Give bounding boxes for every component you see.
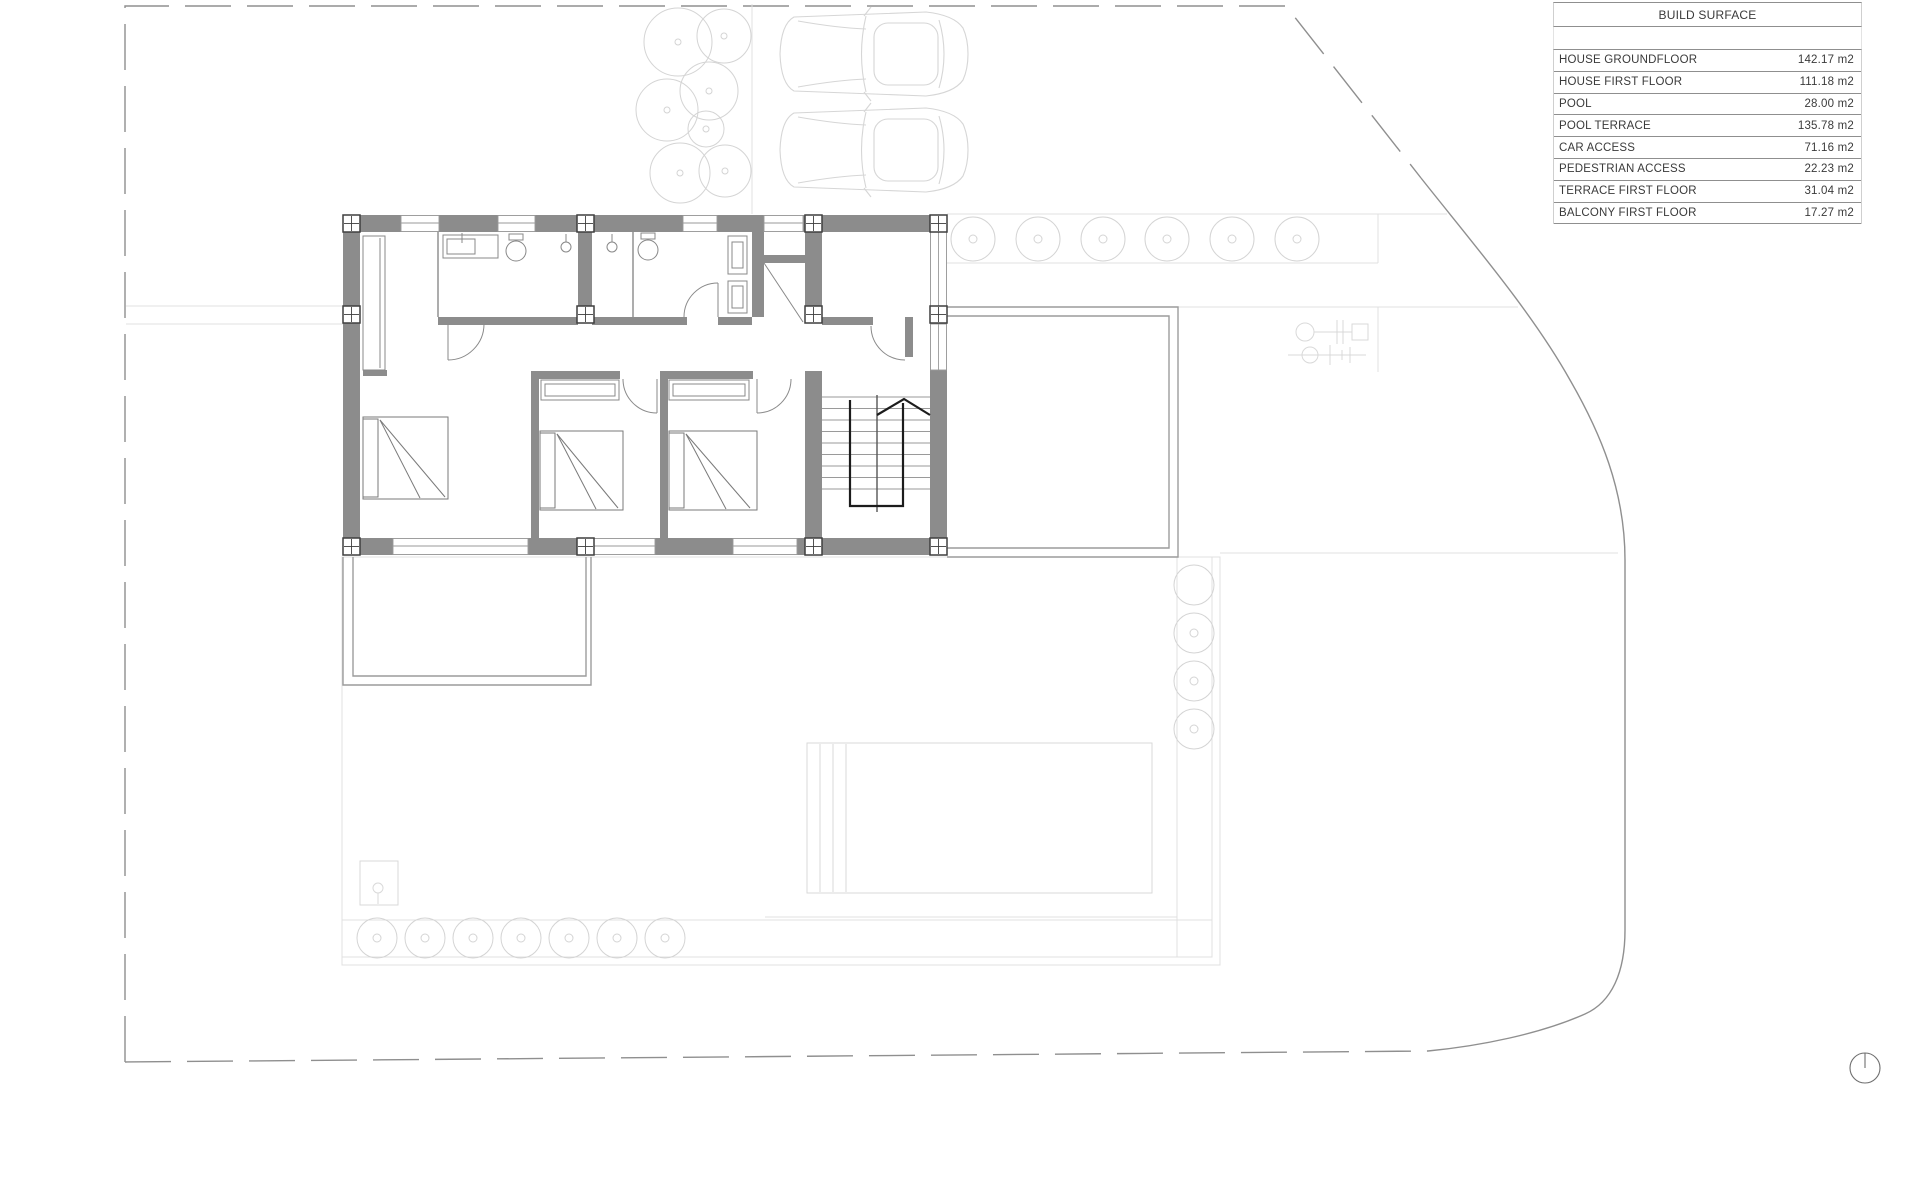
window bbox=[594, 539, 655, 555]
table-row: TERRACE FIRST FLOOR 31.04 m2 bbox=[1554, 181, 1861, 203]
table-row: HOUSE GROUNDFLOOR 142.17 m2 bbox=[1554, 50, 1861, 72]
tree-icon bbox=[501, 918, 541, 958]
table-row: HOUSE FIRST FLOOR 111.18 m2 bbox=[1554, 72, 1861, 94]
boundary-dashed-bottom bbox=[125, 1051, 1428, 1062]
row-value: 135.78 m2 bbox=[1798, 120, 1854, 132]
row-label: CAR ACCESS bbox=[1559, 142, 1635, 154]
car-icon bbox=[780, 7, 968, 101]
tree-icon bbox=[1174, 565, 1214, 605]
floor-plan-sheet: BUILD SURFACE HOUSE GROUNDFLOOR 142.17 m… bbox=[0, 0, 1920, 1200]
table-title: BUILD SURFACE bbox=[1553, 2, 1862, 27]
window bbox=[393, 539, 528, 555]
floor-drain-icon bbox=[561, 234, 571, 252]
window bbox=[683, 216, 717, 232]
house-floor-plan bbox=[343, 215, 947, 555]
row-value: 71.16 m2 bbox=[1804, 142, 1854, 154]
structural-columns bbox=[343, 215, 947, 555]
tree-icon bbox=[1210, 217, 1254, 261]
door-swing bbox=[448, 324, 484, 360]
table-row: POOL TERRACE 135.78 m2 bbox=[1554, 115, 1861, 137]
tree-icon bbox=[1174, 613, 1214, 653]
table-row: BALCONY FIRST FLOOR 17.27 m2 bbox=[1554, 203, 1861, 225]
window bbox=[401, 216, 439, 232]
tree-icon bbox=[453, 918, 493, 958]
tree-icon bbox=[650, 143, 710, 203]
balcony-first-floor bbox=[343, 557, 591, 685]
bed bbox=[540, 431, 623, 510]
terrace-door-opening bbox=[931, 324, 947, 370]
row-label: PEDESTRIAN ACCESS bbox=[1559, 163, 1686, 175]
door-swing bbox=[871, 326, 905, 360]
table-row: PEDESTRIAN ACCESS 22.23 m2 bbox=[1554, 159, 1861, 181]
tree-icon bbox=[645, 918, 685, 958]
tree-icon bbox=[1174, 661, 1214, 701]
bedroom-wardrobes bbox=[541, 380, 749, 400]
terrace-first-floor bbox=[947, 307, 1178, 557]
row-label: POOL TERRACE bbox=[1559, 120, 1651, 132]
toilet-icon bbox=[506, 234, 526, 261]
boundary-curve-right bbox=[1421, 178, 1625, 1051]
beds bbox=[363, 417, 757, 510]
table-rows: HOUSE GROUNDFLOOR 142.17 m2 HOUSE FIRST … bbox=[1553, 49, 1862, 224]
tree-icon bbox=[405, 918, 445, 958]
pool bbox=[807, 743, 1152, 893]
tree-icon bbox=[688, 111, 724, 147]
row-value: 31.04 m2 bbox=[1804, 185, 1854, 197]
floor-drain-icon bbox=[607, 234, 617, 252]
tree-icon bbox=[1174, 709, 1214, 749]
row-value: 111.18 m2 bbox=[1800, 76, 1854, 88]
table-row: CAR ACCESS 71.16 m2 bbox=[1554, 137, 1861, 159]
tree-row-bottom bbox=[357, 918, 685, 958]
double-vanity bbox=[728, 236, 747, 313]
wardrobe bbox=[363, 236, 385, 370]
window bbox=[931, 232, 947, 307]
tree-icon bbox=[644, 8, 712, 76]
window bbox=[764, 216, 803, 232]
tree-icon bbox=[597, 918, 637, 958]
tree-icon bbox=[699, 145, 751, 197]
door-swing bbox=[684, 283, 718, 317]
tree-cluster bbox=[636, 8, 751, 203]
door-swing bbox=[623, 379, 657, 413]
row-label: HOUSE GROUNDFLOOR bbox=[1559, 54, 1697, 66]
table-spacer bbox=[1553, 27, 1862, 49]
exterior-walls bbox=[343, 215, 947, 555]
pool-terrace bbox=[342, 557, 1220, 965]
tree-icon bbox=[357, 918, 397, 958]
table-row: POOL 28.00 m2 bbox=[1554, 94, 1861, 116]
garden-equipment bbox=[1288, 320, 1368, 365]
toilet-icon bbox=[638, 233, 658, 260]
north-indicator-icon bbox=[1850, 1053, 1880, 1083]
tree-icon bbox=[1145, 217, 1189, 261]
storage-diagonal bbox=[764, 263, 803, 322]
row-label: POOL bbox=[1559, 98, 1592, 110]
bed bbox=[363, 417, 448, 499]
row-label: TERRACE FIRST FLOOR bbox=[1559, 185, 1697, 197]
row-label: BALCONY FIRST FLOOR bbox=[1559, 207, 1697, 219]
window bbox=[498, 216, 535, 232]
tree-column-right bbox=[1174, 565, 1214, 749]
tree-icon bbox=[1016, 217, 1060, 261]
boundary-dashed-left-top bbox=[125, 6, 1421, 1062]
row-label: HOUSE FIRST FLOOR bbox=[1559, 76, 1682, 88]
parked-cars bbox=[780, 7, 968, 197]
row-value: 22.23 m2 bbox=[1804, 163, 1854, 175]
row-value: 17.27 m2 bbox=[1804, 207, 1854, 219]
window bbox=[733, 539, 797, 555]
tree-icon bbox=[1275, 217, 1319, 261]
tree-icon bbox=[951, 217, 995, 261]
staircase bbox=[822, 395, 930, 512]
tree-icon bbox=[1081, 217, 1125, 261]
row-value: 28.00 m2 bbox=[1804, 98, 1854, 110]
tree-row-driveway bbox=[951, 217, 1319, 261]
tree-icon bbox=[549, 918, 589, 958]
outdoor-shower bbox=[360, 861, 398, 905]
build-surface-table: BUILD SURFACE HOUSE GROUNDFLOOR 142.17 m… bbox=[1553, 2, 1862, 224]
row-value: 142.17 m2 bbox=[1798, 54, 1854, 66]
tree-icon bbox=[697, 9, 751, 63]
door-swing bbox=[757, 379, 791, 413]
bed bbox=[669, 431, 757, 510]
sink-counter bbox=[443, 233, 498, 258]
car-icon bbox=[780, 103, 968, 197]
